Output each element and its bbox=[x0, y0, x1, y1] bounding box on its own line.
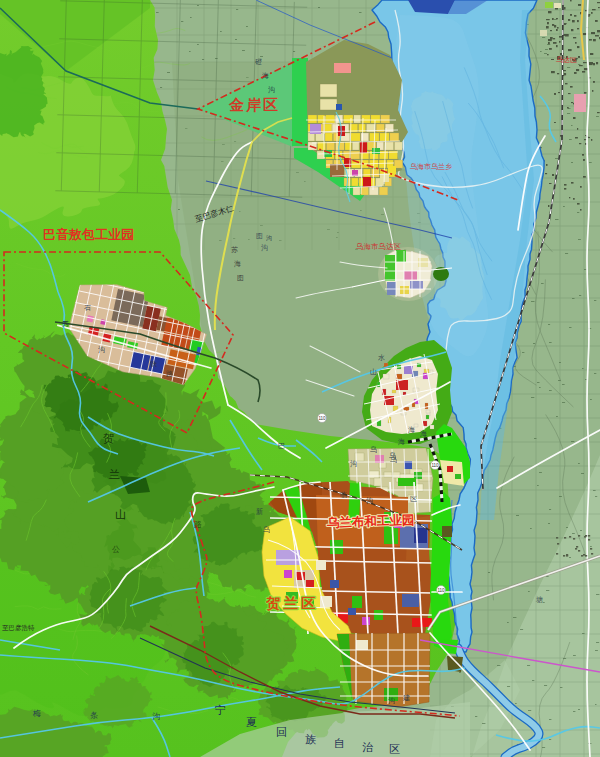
svg-text:海: 海 bbox=[234, 260, 241, 268]
svg-text:路: 路 bbox=[194, 520, 202, 529]
svg-text:新: 新 bbox=[256, 507, 263, 515]
svg-text:夏: 夏 bbox=[246, 716, 257, 728]
svg-text:贺兰区: 贺兰区 bbox=[265, 595, 319, 611]
svg-text:水: 水 bbox=[378, 354, 385, 361]
svg-text:沟: 沟 bbox=[261, 244, 268, 252]
svg-text:回: 回 bbox=[276, 726, 287, 738]
svg-text:临: 临 bbox=[340, 491, 347, 499]
svg-text:路: 路 bbox=[166, 370, 173, 378]
svg-text:乌: 乌 bbox=[389, 452, 396, 459]
svg-text:塘: 塘 bbox=[535, 596, 543, 603]
svg-text:族: 族 bbox=[305, 733, 316, 745]
svg-text:治: 治 bbox=[362, 741, 374, 753]
svg-text:沟: 沟 bbox=[388, 697, 395, 705]
svg-text:乌: 乌 bbox=[263, 526, 270, 533]
svg-text:沟: 沟 bbox=[152, 712, 160, 721]
svg-text:乌: 乌 bbox=[370, 446, 377, 453]
svg-text:沟: 沟 bbox=[268, 86, 275, 94]
svg-text:铁: 铁 bbox=[149, 360, 157, 368]
svg-text:巴: 巴 bbox=[278, 442, 285, 449]
svg-text:沟: 沟 bbox=[266, 235, 272, 242]
svg-text:公: 公 bbox=[112, 545, 120, 554]
svg-text:建: 建 bbox=[402, 694, 410, 702]
svg-text:海: 海 bbox=[398, 438, 405, 446]
svg-text:苏: 苏 bbox=[231, 246, 238, 253]
svg-text:山: 山 bbox=[115, 508, 126, 520]
svg-text:沟: 沟 bbox=[366, 497, 373, 505]
svg-text:110: 110 bbox=[431, 463, 439, 468]
svg-text:乌达区: 乌达区 bbox=[556, 56, 577, 63]
svg-text:区: 区 bbox=[389, 743, 400, 755]
svg-text:乌兰布和工业园: 乌兰布和工业园 bbox=[327, 512, 415, 530]
svg-text:海: 海 bbox=[420, 430, 427, 438]
svg-text:巴音敖包工业园: 巴音敖包工业园 bbox=[43, 227, 134, 242]
svg-text:图: 图 bbox=[237, 274, 244, 282]
svg-text:秀: 秀 bbox=[62, 320, 69, 328]
svg-text:110: 110 bbox=[437, 588, 445, 593]
svg-text:山: 山 bbox=[370, 368, 377, 375]
svg-text:自: 自 bbox=[334, 737, 345, 749]
svg-text:梅: 梅 bbox=[32, 709, 41, 718]
svg-text:沟: 沟 bbox=[98, 346, 105, 354]
svg-text:贺: 贺 bbox=[103, 432, 114, 444]
svg-text:海: 海 bbox=[408, 426, 415, 434]
svg-text:110: 110 bbox=[318, 416, 326, 421]
svg-text:条: 条 bbox=[90, 711, 98, 720]
svg-text:乌海市乌达区: 乌海市乌达区 bbox=[355, 242, 402, 251]
svg-text:区: 区 bbox=[410, 495, 417, 502]
svg-text:磴: 磴 bbox=[255, 58, 262, 66]
svg-text:沟: 沟 bbox=[350, 460, 357, 468]
svg-text:兰: 兰 bbox=[109, 468, 120, 480]
svg-text:海: 海 bbox=[262, 72, 269, 80]
svg-text:金岸区: 金岸区 bbox=[228, 96, 280, 113]
svg-text:图: 图 bbox=[256, 232, 263, 240]
svg-text:乌海市乌兰乡: 乌海市乌兰乡 bbox=[410, 162, 452, 171]
svg-text:宁: 宁 bbox=[215, 704, 226, 716]
svg-text:至巴彦浩特: 至巴彦浩特 bbox=[2, 624, 35, 632]
svg-text:石: 石 bbox=[84, 304, 91, 312]
